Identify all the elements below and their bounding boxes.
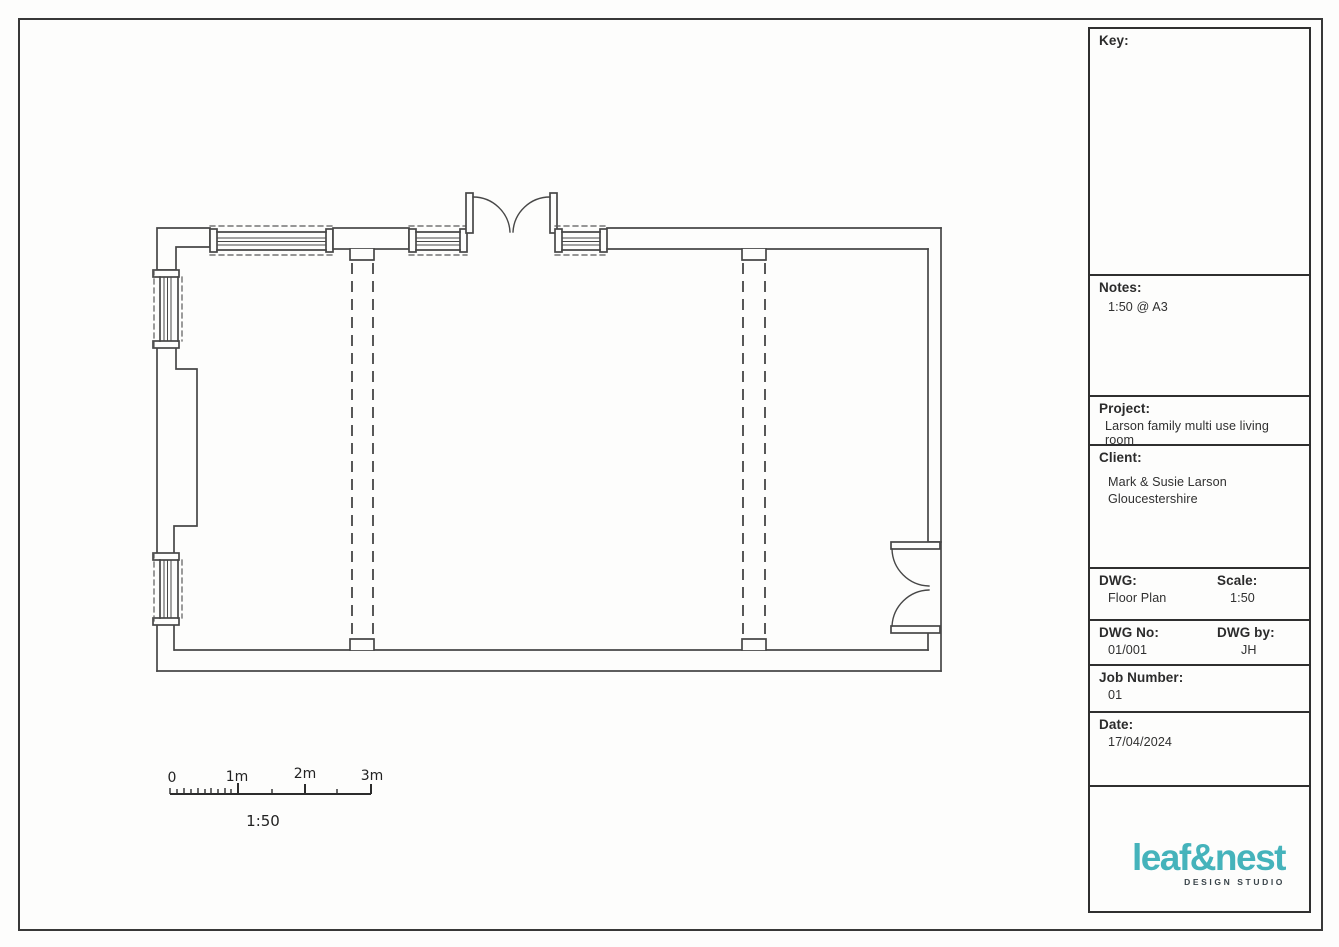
wall-bottom <box>157 639 941 671</box>
scale-bar <box>170 783 371 794</box>
double-door-top <box>466 193 557 233</box>
job-number-label: Job Number: <box>1099 670 1301 685</box>
dwg-scale-section: DWG: Floor Plan Scale: 1:50 <box>1090 567 1309 619</box>
scale-tick-3m: 3m <box>361 768 384 784</box>
notes-value: 1:50 @ A3 <box>1108 300 1301 314</box>
wall-right <box>928 228 941 671</box>
date-section: Date: 17/04/2024 <box>1090 711 1309 758</box>
project-label: Project: <box>1099 401 1301 416</box>
logo-tagline: DESIGN STUDIO <box>1121 877 1285 887</box>
project-value: Larson family multi use living room <box>1105 419 1301 447</box>
scale-tick-2m: 2m <box>294 766 317 782</box>
scale-label: Scale: <box>1217 573 1301 588</box>
client-section: Client: Mark & Susie Larson Gloucestersh… <box>1090 444 1309 567</box>
key-section: Key: <box>1090 29 1309 274</box>
dwgno-by-section: DWG No: 01/001 DWG by: JH <box>1090 619 1309 664</box>
scale-tick-1m: 1m <box>226 769 249 785</box>
key-label: Key: <box>1099 33 1301 48</box>
window-left-upper <box>153 270 182 348</box>
dwg-by-value: JH <box>1241 643 1301 657</box>
date-value: 17/04/2024 <box>1108 735 1301 749</box>
logo-section: leaf&nest DESIGN STUDIO <box>1090 785 1309 942</box>
scale-tick-0: 0 <box>168 770 177 786</box>
client-location: Gloucestershire <box>1108 492 1301 506</box>
window-top-right <box>555 226 608 255</box>
window-left-lower <box>153 553 182 625</box>
job-number-section: Job Number: 01 <box>1090 664 1309 711</box>
dwg-label: DWG: <box>1099 573 1217 588</box>
dwg-by-label: DWG by: <box>1217 625 1301 640</box>
job-number-value: 01 <box>1108 688 1301 702</box>
client-name: Mark & Susie Larson <box>1108 475 1301 489</box>
dwg-no-value: 01/001 <box>1108 643 1217 657</box>
scale-value: 1:50 <box>1230 591 1301 605</box>
notes-section: Notes: 1:50 @ A3 <box>1090 274 1309 395</box>
title-block: Key: Notes: 1:50 @ A3 Project: Larson fa… <box>1088 27 1311 913</box>
scale-ratio-label: 1:50 <box>246 812 280 830</box>
window-top-mid <box>409 226 467 255</box>
corner-pier-top-left <box>157 228 210 270</box>
company-logo: leaf&nest DESIGN STUDIO <box>1121 839 1285 887</box>
notes-label: Notes: <box>1099 280 1301 295</box>
logo-wordmark: leaf&nest <box>1121 839 1285 876</box>
double-door-right <box>891 542 940 633</box>
project-section: Project: Larson family multi use living … <box>1090 395 1309 444</box>
date-label: Date: <box>1099 717 1301 732</box>
wall-pier-top <box>333 228 409 260</box>
removed-wall-dashed-pair-2 <box>743 264 765 636</box>
dwg-value: Floor Plan <box>1108 591 1217 605</box>
client-label: Client: <box>1099 450 1301 465</box>
wall-top <box>607 228 941 260</box>
dwg-no-label: DWG No: <box>1099 625 1217 640</box>
window-top-left <box>210 226 333 255</box>
removed-wall-dashed-pair-1 <box>352 264 373 636</box>
scale-bar-labels: 0 1m 2m 3m 1:50 <box>168 766 384 830</box>
drawing-sheet: 0 1m 2m 3m 1:50 Key: Notes: 1:50 @ A3 Pr… <box>0 0 1339 947</box>
